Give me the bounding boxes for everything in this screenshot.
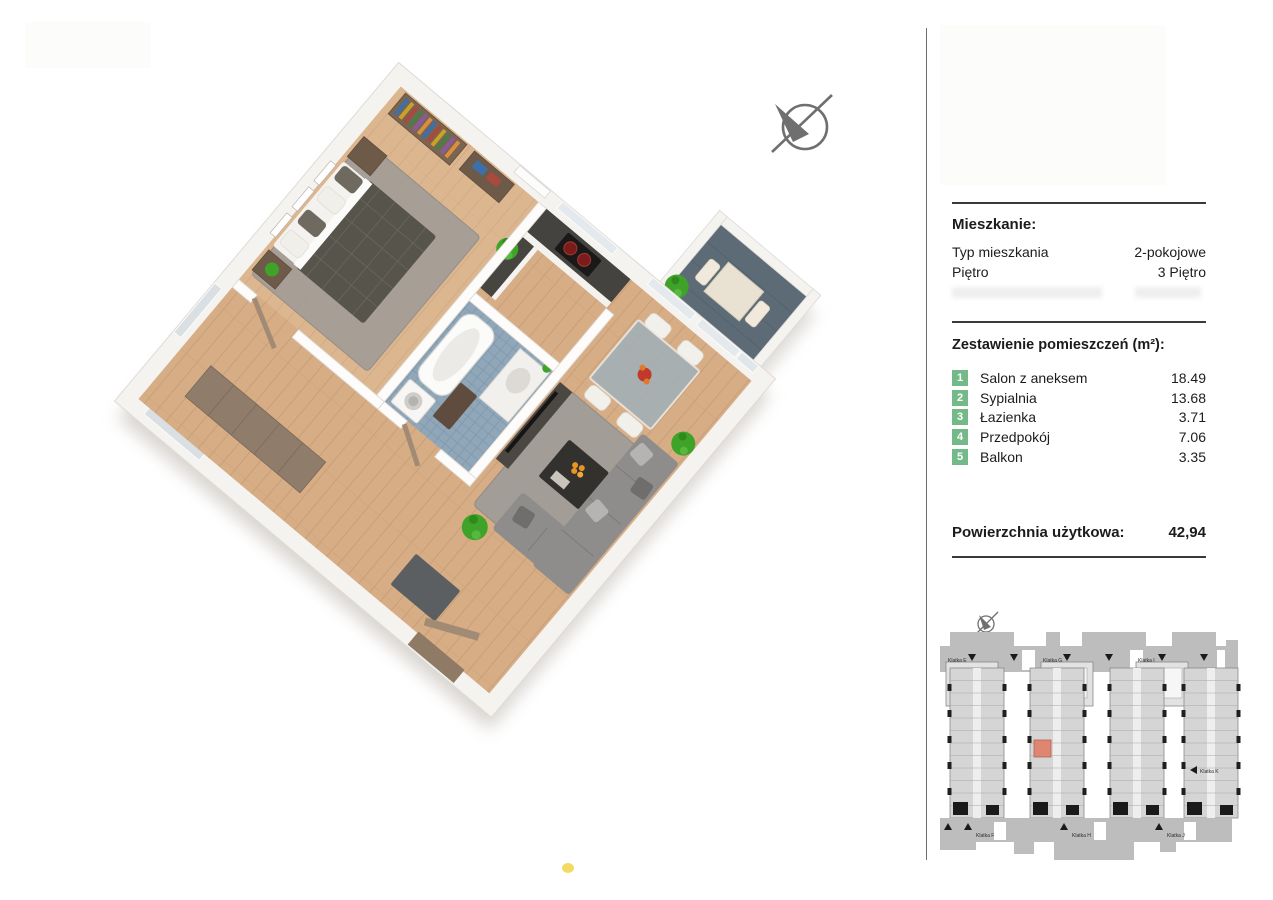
apartment-type-value: 2-pokojowe: [1134, 244, 1206, 260]
room-name: Łazienka: [980, 409, 1179, 425]
rooms-section: Zestawienie pomieszczeń (m²): 1 Salon z …: [952, 337, 1206, 467]
room-area: 3.71: [1179, 409, 1206, 425]
apartment-type-label: Typ mieszkania: [952, 244, 1048, 260]
total-area-label: Powierzchnia użytkowa:: [952, 524, 1125, 541]
klatka-label: Klatka K: [1200, 769, 1219, 775]
north-arrow-icon: [762, 90, 848, 168]
klatka-label: Klatka I: [1138, 658, 1155, 664]
room-list-item: 2 Sypialnia 13.68: [952, 388, 1206, 408]
separator-line: [952, 202, 1206, 204]
room-area: 13.68: [1171, 390, 1206, 406]
floor-row: Piętro 3 Piętro: [952, 262, 1206, 282]
room-area: 3.35: [1179, 449, 1206, 465]
redacted-row: [1135, 287, 1201, 298]
total-area-value: 42,94: [1168, 524, 1206, 541]
separator-line: [952, 321, 1206, 323]
klatka-label: Klatka H: [1072, 833, 1091, 839]
page-indicator-dot: [562, 863, 574, 873]
logo-placeholder-top-right: [940, 25, 1166, 185]
room-area: 18.49: [1171, 370, 1206, 386]
separator-line: [952, 556, 1206, 558]
room-number-badge: 2: [952, 390, 968, 406]
minimap-highlighted-unit[interactable]: [1034, 740, 1051, 757]
apartment-heading: Mieszkanie:: [952, 216, 1206, 233]
room-number-badge: 1: [952, 370, 968, 386]
room-name: Przedpokój: [980, 429, 1179, 445]
room-number-badge: 4: [952, 429, 968, 445]
room-list-item: 4 Przedpokój 7.06: [952, 427, 1206, 447]
room-name: Sypialnia: [980, 390, 1171, 406]
apartment-info-section: Mieszkanie: Typ mieszkania 2-pokojowe Pi…: [952, 216, 1206, 282]
room-area: 7.06: [1179, 429, 1206, 445]
klatka-label: Klatka E: [948, 658, 967, 664]
floor-value: 3 Piętro: [1158, 264, 1206, 280]
room-list-item: 5 Balkon 3.35: [952, 447, 1206, 467]
klatka-label: Klatka J: [1167, 833, 1185, 839]
klatka-label: Klatka G: [1043, 658, 1062, 664]
redacted-row: [952, 287, 1102, 298]
room-list-item: 3 Łazienka 3.71: [952, 408, 1206, 428]
room-number-badge: 3: [952, 409, 968, 425]
building-floor-minimap: Klatka E Klatka G Klatka I Klatka F Klat…: [934, 606, 1244, 862]
room-list-item: 1 Salon z aneksem 18.49: [952, 368, 1206, 388]
room-number-badge: 5: [952, 449, 968, 465]
room-name: Salon z aneksem: [980, 370, 1171, 386]
room-name: Balkon: [980, 449, 1179, 465]
apartment-type-row: Typ mieszkania 2-pokojowe: [952, 242, 1206, 262]
panel-divider: [926, 28, 927, 860]
total-area-row: Powierzchnia użytkowa: 42,94: [952, 524, 1206, 541]
floor-label: Piętro: [952, 264, 989, 280]
rooms-heading: Zestawienie pomieszczeń (m²):: [952, 337, 1206, 353]
klatka-label: Klatka F: [976, 833, 994, 839]
